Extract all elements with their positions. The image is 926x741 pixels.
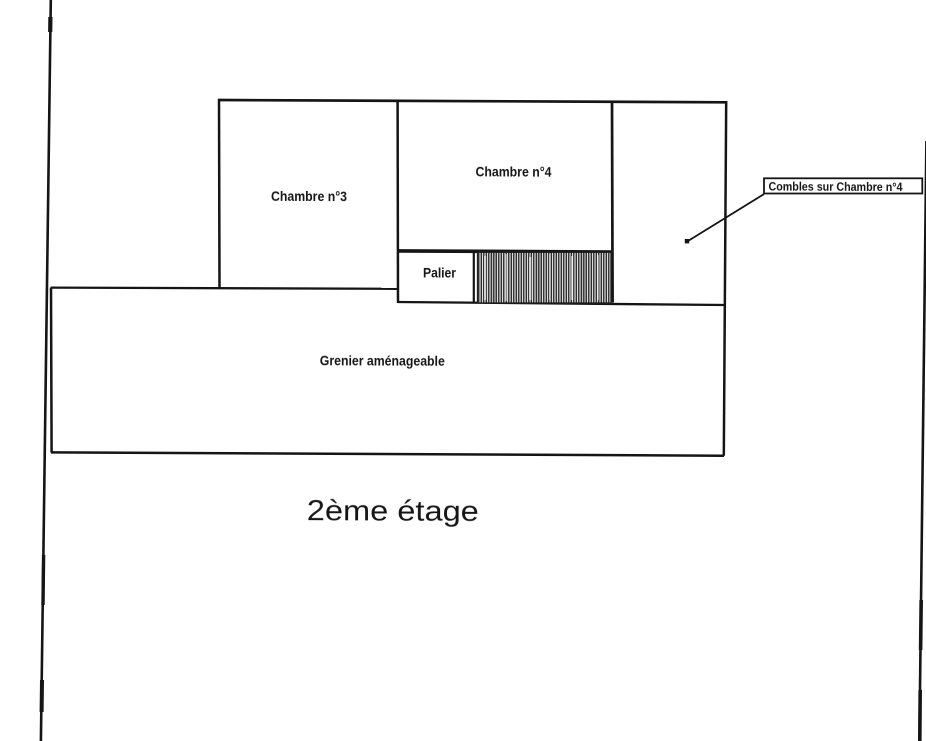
svg-text:Chambre n°4: Chambre n°4 — [475, 164, 551, 179]
svg-text:Grenier aménageable: Grenier aménageable — [320, 353, 445, 369]
svg-text:2ème étage: 2ème étage — [307, 495, 479, 528]
svg-text:Chambre n°3: Chambre n°3 — [271, 189, 347, 204]
svg-text:Palier: Palier — [423, 265, 457, 280]
svg-text:Combles sur Chambre n°4: Combles sur Chambre n°4 — [768, 180, 902, 195]
